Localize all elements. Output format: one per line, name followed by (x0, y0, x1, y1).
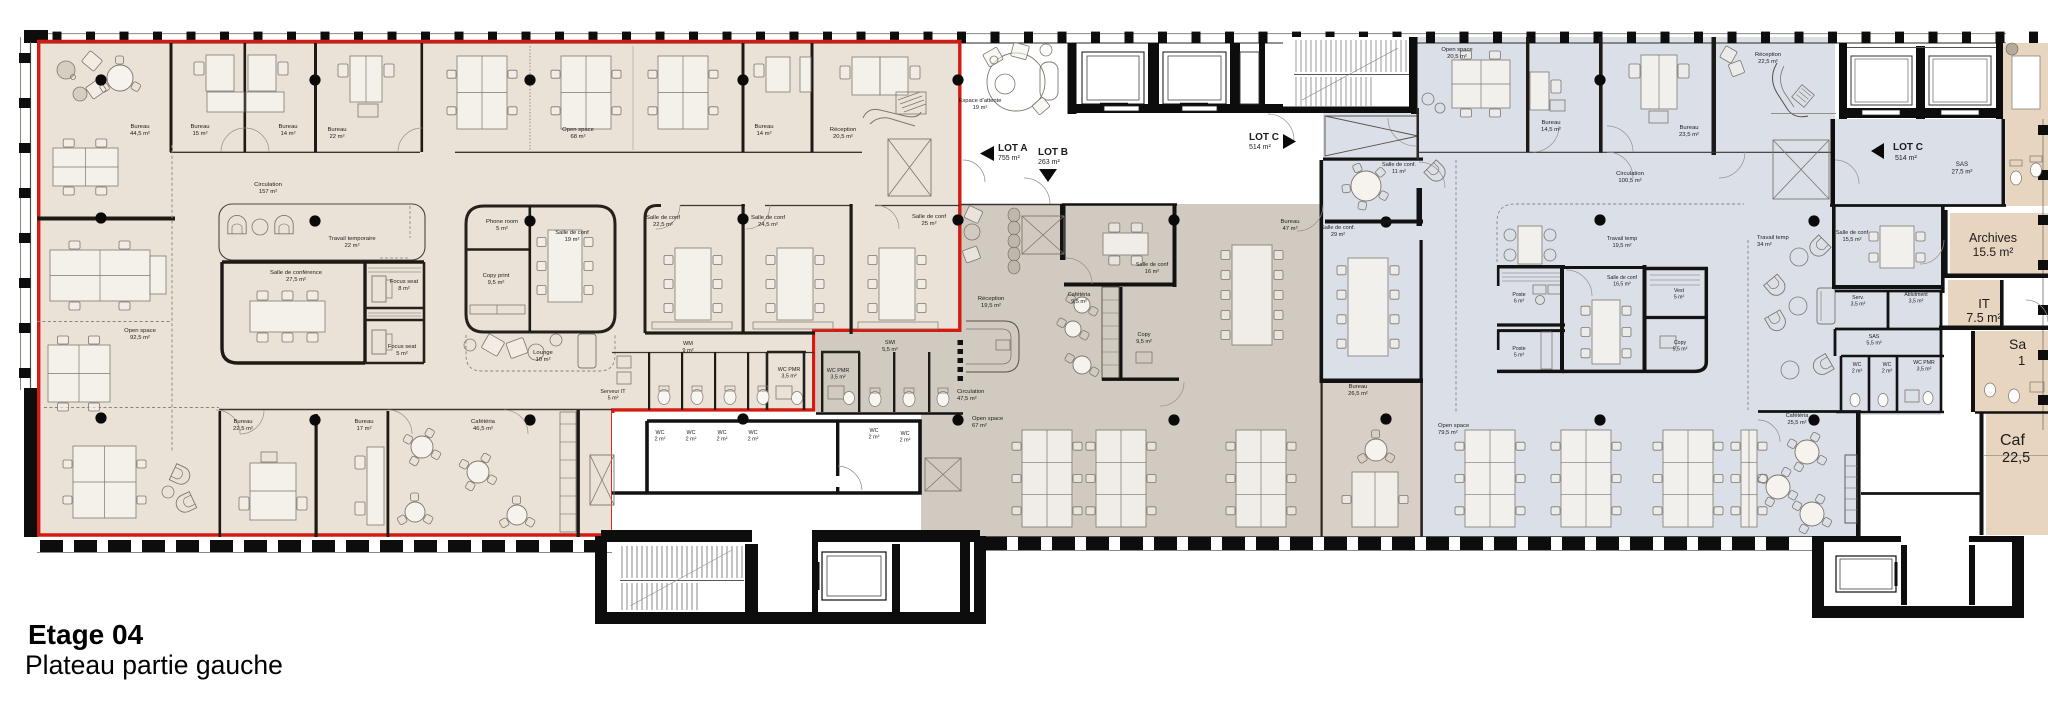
svg-text:Archives: Archives (1969, 231, 2017, 245)
svg-text:WC2 m²: WC2 m² (748, 430, 759, 443)
svg-text:WC2 m²: WC2 m² (655, 430, 666, 443)
svg-text:22,5: 22,5 (2002, 450, 2030, 466)
svg-text:Cafétéria25,5 m²: Cafétéria25,5 m² (1786, 413, 1810, 426)
svg-text:IT: IT (1978, 296, 1990, 311)
svg-text:Bureau26,5 m²: Bureau26,5 m² (1348, 384, 1368, 397)
svg-text:514 m²: 514 m² (1895, 155, 1917, 162)
svg-text:Bureau22,5 m²: Bureau22,5 m² (233, 419, 253, 432)
svg-text:Réception19,5 m²: Réception19,5 m² (978, 296, 1005, 309)
svg-text:Réception20,5 m²: Réception20,5 m² (830, 127, 857, 140)
svg-text:Serv.3,5 m²: Serv.3,5 m² (1851, 295, 1866, 307)
svg-text:Copy5,5 m²: Copy5,5 m² (1673, 340, 1688, 352)
svg-text:Copy9,5 m²: Copy9,5 m² (1136, 332, 1152, 345)
svg-text:263 m²: 263 m² (1038, 159, 1060, 166)
svg-text:WC2 m²: WC2 m² (869, 428, 880, 441)
svg-text:Caf: Caf (2000, 432, 2025, 449)
svg-text:Cafétéria46,5 m²: Cafétéria46,5 m² (471, 419, 496, 432)
svg-text:WM9 m²: WM9 m² (682, 341, 693, 354)
svg-text:Réception22,5 m²: Réception22,5 m² (1755, 52, 1781, 65)
svg-text:7.5 m²: 7.5 m² (1966, 311, 2001, 325)
svg-text:Poste6 m²: Poste6 m² (1512, 292, 1525, 304)
svg-text:WC2 m²: WC2 m² (686, 430, 697, 443)
svg-text:WC2 m²: WC2 m² (1882, 362, 1893, 374)
svg-text:LOT C: LOT C (1249, 132, 1279, 143)
svg-text:LOT A: LOT A (998, 143, 1028, 154)
svg-text:Bureau22 m²: Bureau22 m² (328, 127, 347, 140)
svg-text:Bureau15 m²: Bureau15 m² (191, 124, 210, 137)
svg-text:Bureau14 m²: Bureau14 m² (279, 124, 298, 137)
svg-text:WC2 m²: WC2 m² (717, 430, 728, 443)
svg-text:Bureau47 m²: Bureau47 m² (1281, 219, 1300, 232)
svg-text:Bureau14 m²: Bureau14 m² (755, 124, 774, 137)
svg-text:Vest5 m²: Vest5 m² (1674, 288, 1685, 300)
svg-text:Bureau17 m²: Bureau17 m² (355, 419, 374, 432)
svg-text:Bureau23,5 m²: Bureau23,5 m² (1679, 125, 1699, 138)
svg-text:Sa: Sa (2009, 336, 2026, 352)
svg-text:Etage 04: Etage 04 (28, 619, 144, 650)
svg-text:1: 1 (2018, 353, 2025, 368)
svg-text:15.5 m²: 15.5 m² (1973, 245, 2014, 259)
svg-text:Poste5 m²: Poste5 m² (1512, 346, 1525, 358)
svg-text:WC2 m²: WC2 m² (1852, 362, 1863, 374)
svg-text:755 m²: 755 m² (998, 155, 1020, 162)
svg-text:Circulation100,5 m²: Circulation100,5 m² (1616, 171, 1644, 184)
svg-text:WC2 m²: WC2 m² (900, 431, 911, 444)
svg-text:Lounge10 m²: Lounge10 m² (533, 350, 553, 363)
svg-text:LOT C: LOT C (1893, 142, 1923, 153)
svg-text:514 m²: 514 m² (1249, 144, 1271, 151)
svg-text:LOT B: LOT B (1038, 147, 1068, 158)
svg-text:Bureau44,5 m²: Bureau44,5 m² (130, 124, 150, 137)
svg-text:Bureau14,5 m²: Bureau14,5 m² (1541, 120, 1561, 133)
svg-text:Plateau partie gauche: Plateau partie gauche (25, 650, 283, 680)
